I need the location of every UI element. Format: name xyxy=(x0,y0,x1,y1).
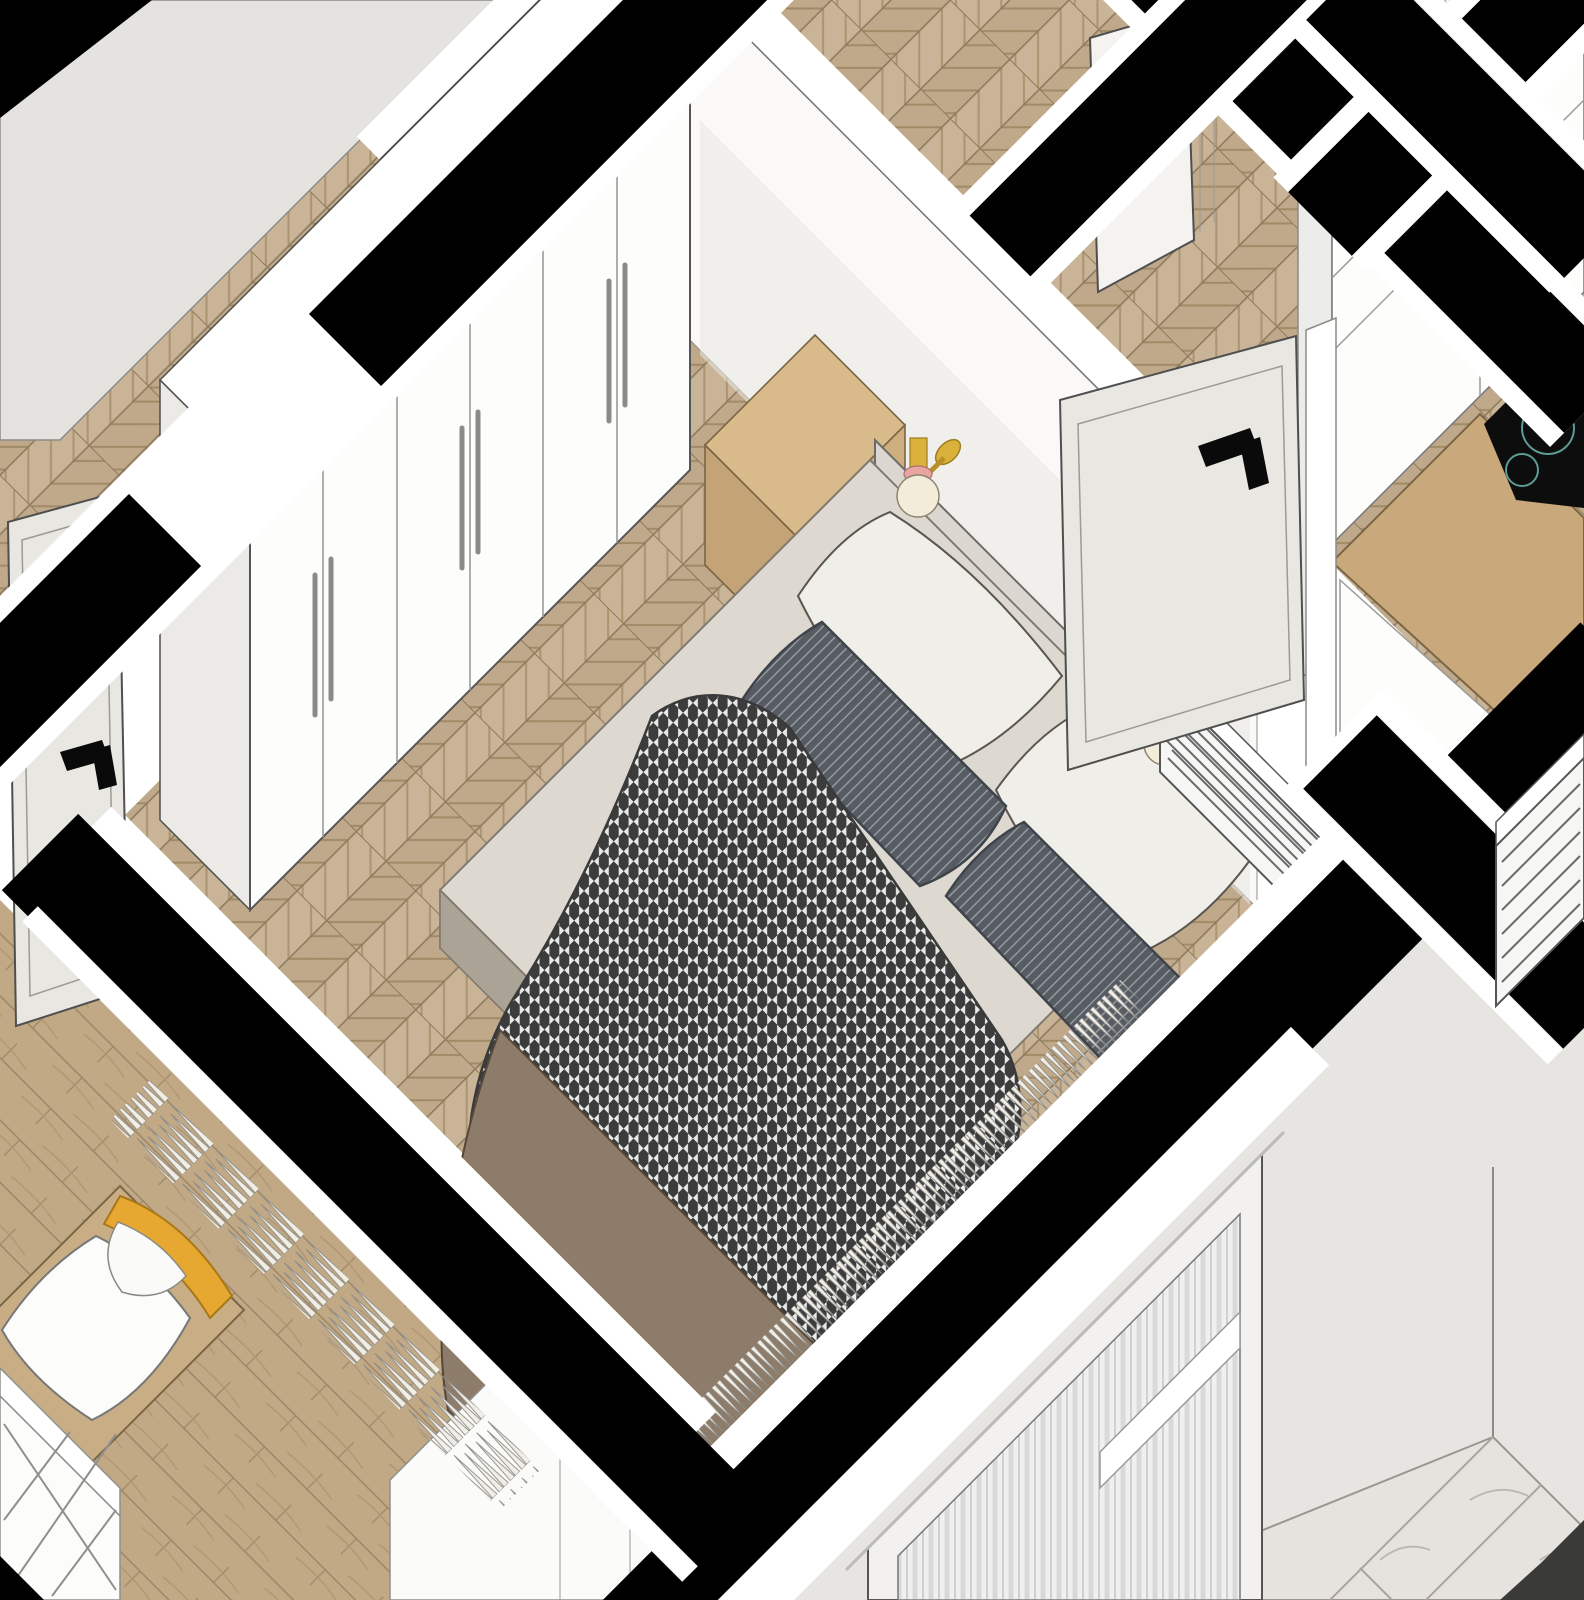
hallway-door-right xyxy=(1060,318,1336,772)
lamp-globe xyxy=(897,475,939,517)
door-frame-strip xyxy=(1306,318,1336,772)
apartment-isometric-rendering xyxy=(0,0,1584,1600)
door-leaf xyxy=(1060,336,1304,770)
scene-canvas xyxy=(0,0,1584,1600)
